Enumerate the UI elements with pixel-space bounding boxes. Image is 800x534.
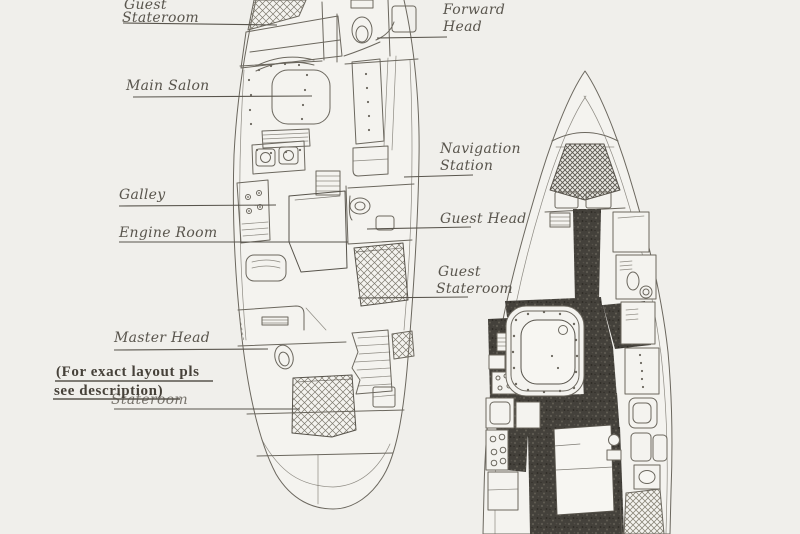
port-accommodation-plan bbox=[233, 0, 419, 509]
label-galley: Galley bbox=[119, 187, 166, 203]
label-navigation-station-1: Navigation bbox=[439, 141, 521, 157]
note-line-2: see description) bbox=[54, 383, 163, 399]
label-guest-stateroom-aft-2: Stateroom bbox=[436, 281, 513, 297]
yacht-layout-scan: Guest Stateroom Main Salon Forward Head … bbox=[0, 0, 800, 534]
label-guest-stateroom-aft-1: Guest bbox=[438, 264, 481, 280]
label-forward-head-2: Head bbox=[442, 19, 482, 35]
stbd-aft-hatch bbox=[620, 489, 664, 534]
port-guest-berth bbox=[354, 243, 408, 306]
label-guest-stateroom-fwd-2: Stateroom bbox=[122, 10, 199, 26]
stbd-dinette bbox=[506, 306, 584, 396]
label-master-head: Master Head bbox=[113, 330, 210, 346]
label-main-salon: Main Salon bbox=[125, 78, 210, 94]
stbd-aft-berth bbox=[554, 425, 614, 515]
port-master-bed bbox=[292, 375, 356, 437]
label-navigation-station-2: Station bbox=[440, 158, 493, 174]
note-line-1: (For exact layout pls bbox=[56, 364, 200, 380]
label-engine-room: Engine Room bbox=[118, 225, 217, 241]
scanned-page: Guest Stateroom Main Salon Forward Head … bbox=[0, 0, 800, 534]
label-guest-head: Guest Head bbox=[440, 211, 527, 227]
label-forward-head-1: Forward bbox=[442, 2, 505, 18]
